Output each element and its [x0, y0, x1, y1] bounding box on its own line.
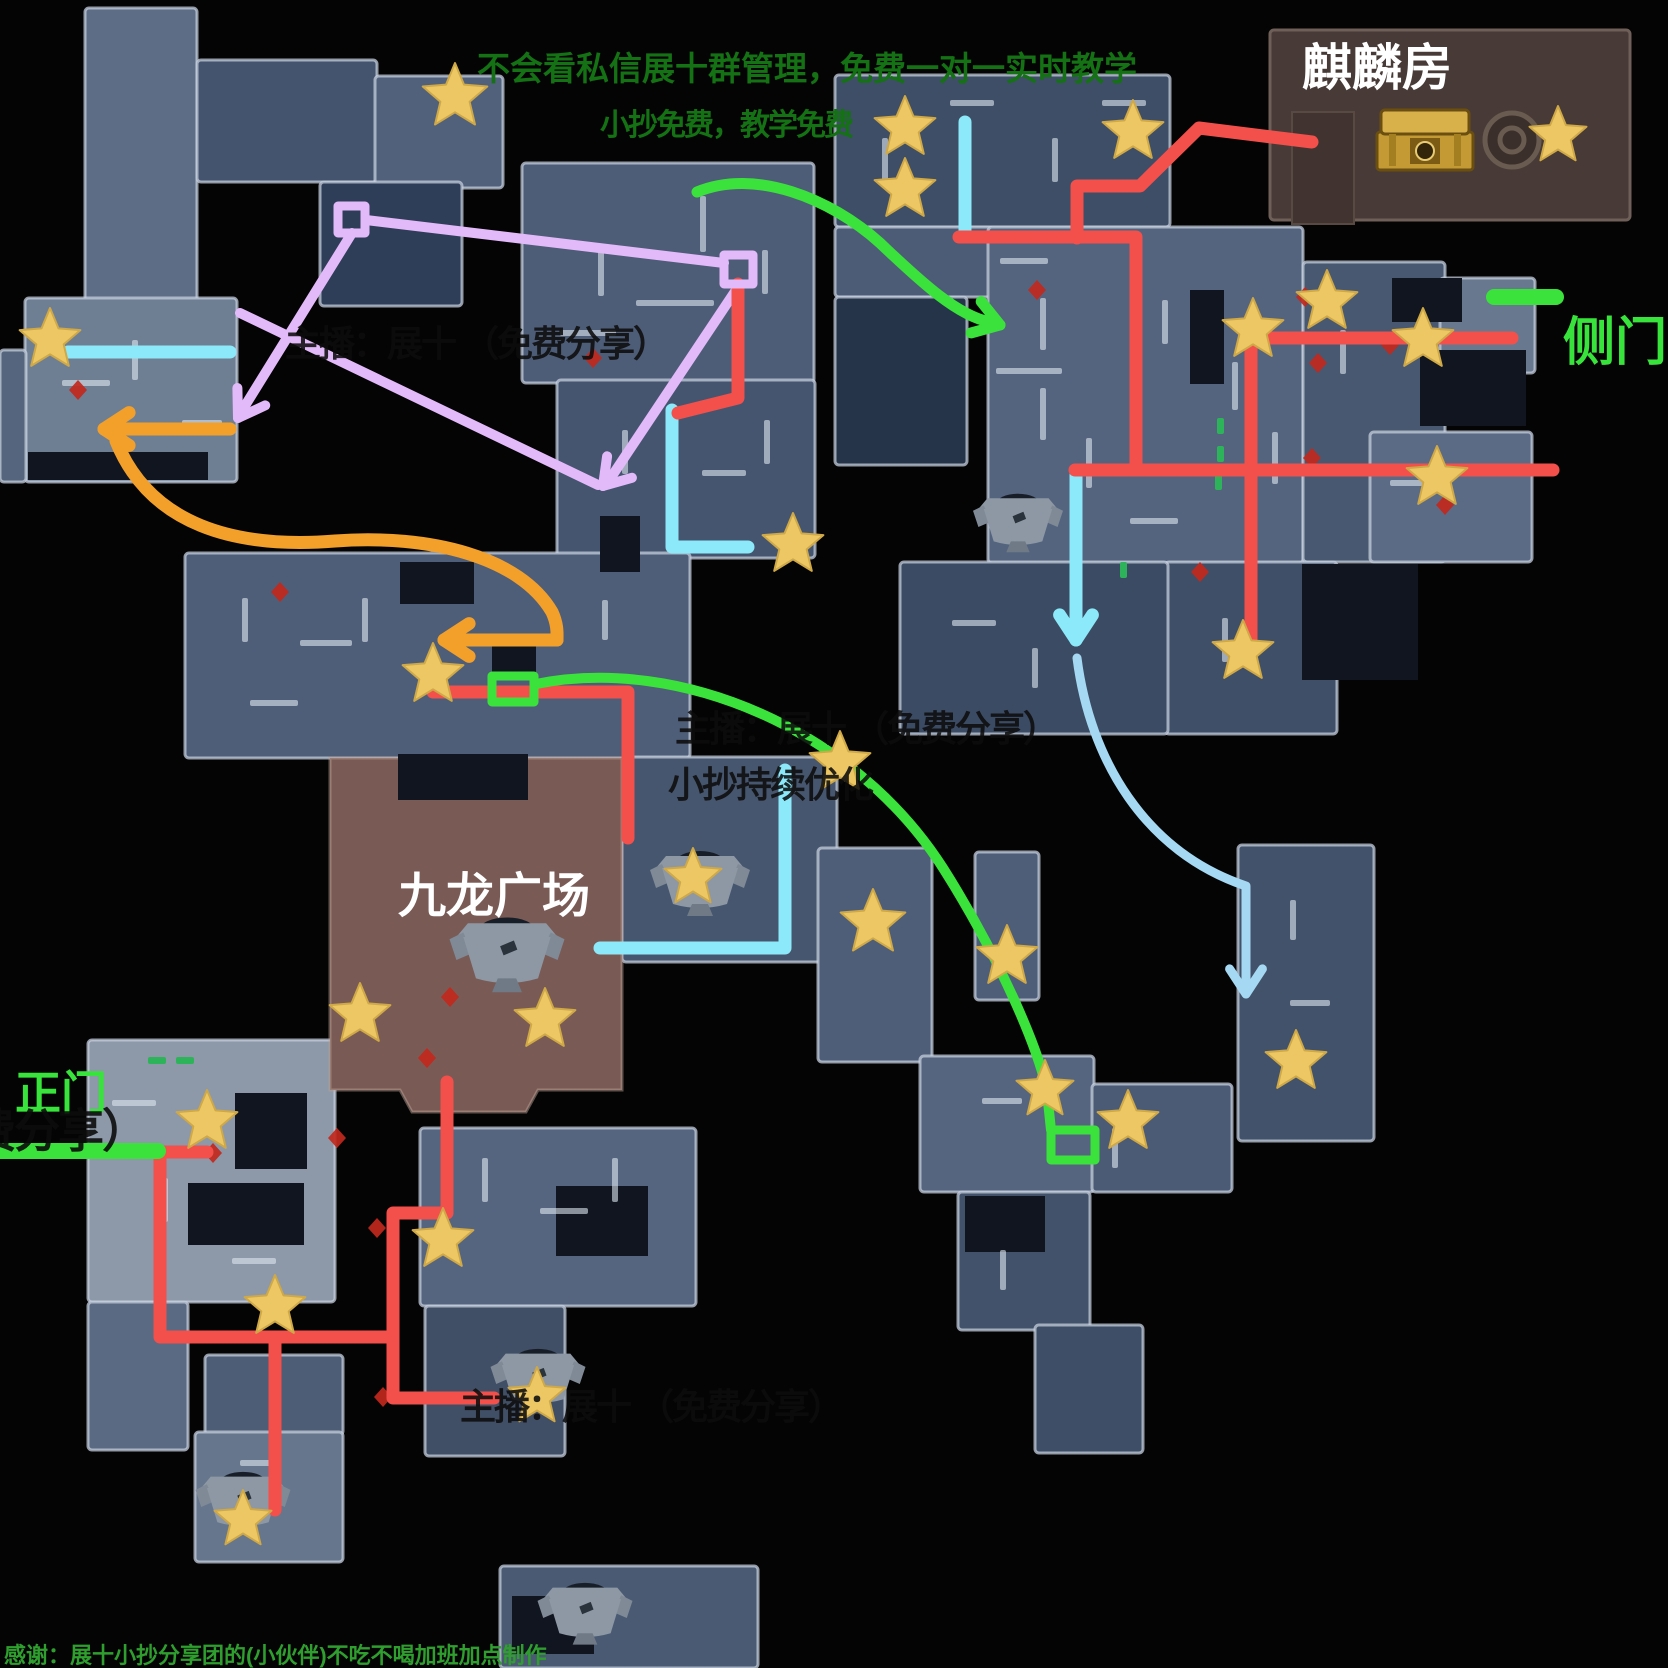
qilin-shelf [1292, 112, 1354, 224]
building-block [197, 60, 377, 182]
wall-tick [1040, 388, 1046, 440]
building-block [1238, 845, 1374, 1141]
wall-tick [702, 470, 746, 476]
side-door-label: 侧门 [1563, 300, 1667, 375]
target-circle-icon [1485, 113, 1539, 167]
dark-patch [235, 1093, 307, 1169]
building-block [1035, 1325, 1143, 1453]
wall-tick [1086, 438, 1092, 488]
door-tick [176, 1057, 194, 1064]
wall-tick [1032, 648, 1038, 688]
plaza-label: 九龙广场 [398, 856, 590, 926]
wall-tick [482, 1158, 488, 1202]
gold-chest-icon [1377, 110, 1473, 170]
game-map-guide: 不会看私信展十群管理，免费一对一实时教学 小抄免费，教学免费 麒麟房 侧门 正门… [0, 0, 1668, 1668]
wall-tick [232, 1258, 276, 1264]
wall-tick [1130, 518, 1178, 524]
wall-tick [1000, 1250, 1006, 1290]
streamer-watermark-2-line2: 小抄持续优化 [668, 756, 872, 808]
wall-tick [250, 700, 298, 706]
wall-tick [1102, 100, 1146, 106]
dark-patch [188, 1183, 304, 1245]
building-block [88, 1040, 335, 1302]
dark-patch [492, 645, 536, 673]
wall-tick [1040, 298, 1046, 350]
wall-tick [242, 598, 248, 642]
wall-tick [362, 598, 368, 642]
building-block [920, 1056, 1094, 1192]
dark-patch [400, 562, 474, 604]
wall-tick [1232, 362, 1238, 410]
wall-tick [1290, 1000, 1330, 1006]
wall-tick [1290, 900, 1296, 940]
wall-tick [636, 300, 714, 306]
dark-patch [556, 1186, 648, 1256]
streamer-watermark-2: 主播：展十 （免费分享） [675, 700, 1057, 752]
dark-patch [398, 754, 528, 800]
wall-tick [62, 380, 110, 386]
wall-tick [598, 248, 604, 296]
wall-tick [982, 1098, 1022, 1104]
building-block [88, 1302, 188, 1450]
wall-tick [602, 600, 608, 640]
wall-tick [950, 100, 994, 106]
dark-patch [965, 1196, 1045, 1252]
wall-tick [700, 196, 706, 252]
wall-tick [300, 640, 352, 646]
building-block [85, 8, 197, 306]
door-tick [1217, 418, 1224, 434]
wall-tick [764, 420, 770, 464]
building-block [818, 848, 932, 1062]
wall-tick [1162, 300, 1168, 344]
dark-patch [600, 516, 640, 572]
wall-tick [612, 1158, 618, 1202]
wall-tick [996, 368, 1062, 374]
door-tick [148, 1057, 166, 1064]
promo-text-line1: 不会看私信展十群管理，免费一对一实时教学 [477, 42, 1137, 90]
building-block [835, 297, 967, 465]
dark-patch [1190, 290, 1224, 384]
door-tick [1217, 446, 1224, 462]
credits-text: 感谢：展十小抄分享团的(小伙伴)不吃不喝加班加点制作 [4, 1638, 547, 1668]
streamer-watermark-clipped: 费分享） [0, 1095, 146, 1161]
qilin-room-label: 麒麟房 [1302, 36, 1356, 100]
wall-tick [882, 138, 888, 182]
building-block [0, 350, 26, 482]
promo-text-line2: 小抄免费，教学免费 [600, 100, 852, 144]
wall-tick [952, 620, 996, 626]
wall-tick [762, 250, 768, 294]
streamer-watermark-1: 主播：展十 （免费分享） [285, 315, 667, 367]
door-tick [1120, 562, 1127, 578]
wall-tick [540, 1208, 588, 1214]
dark-patch [1302, 564, 1418, 680]
wall-tick [1000, 258, 1048, 264]
wall-tick [1052, 138, 1058, 182]
streamer-watermark-3: 主播：展十 （免费分享） [460, 1378, 842, 1430]
